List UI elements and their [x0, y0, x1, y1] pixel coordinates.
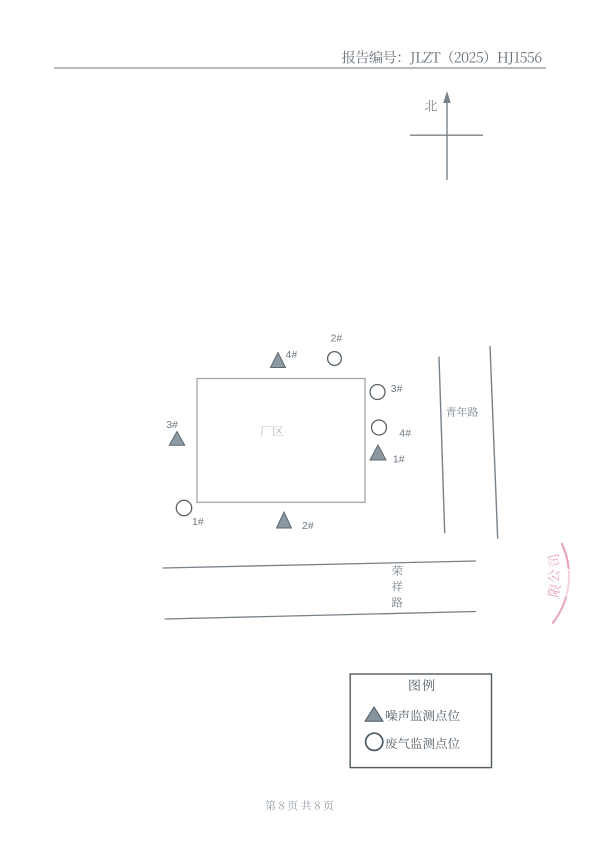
svg-text:2#: 2# [302, 520, 314, 532]
svg-text:2#: 2# [331, 333, 343, 345]
svg-text:3#: 3# [166, 419, 178, 431]
svg-text:1#: 1# [393, 453, 405, 465]
svg-text:3#: 3# [391, 383, 403, 395]
svg-text:1#: 1# [192, 516, 204, 528]
svg-text:4#: 4# [286, 349, 298, 361]
svg-text:4#: 4# [399, 427, 411, 439]
